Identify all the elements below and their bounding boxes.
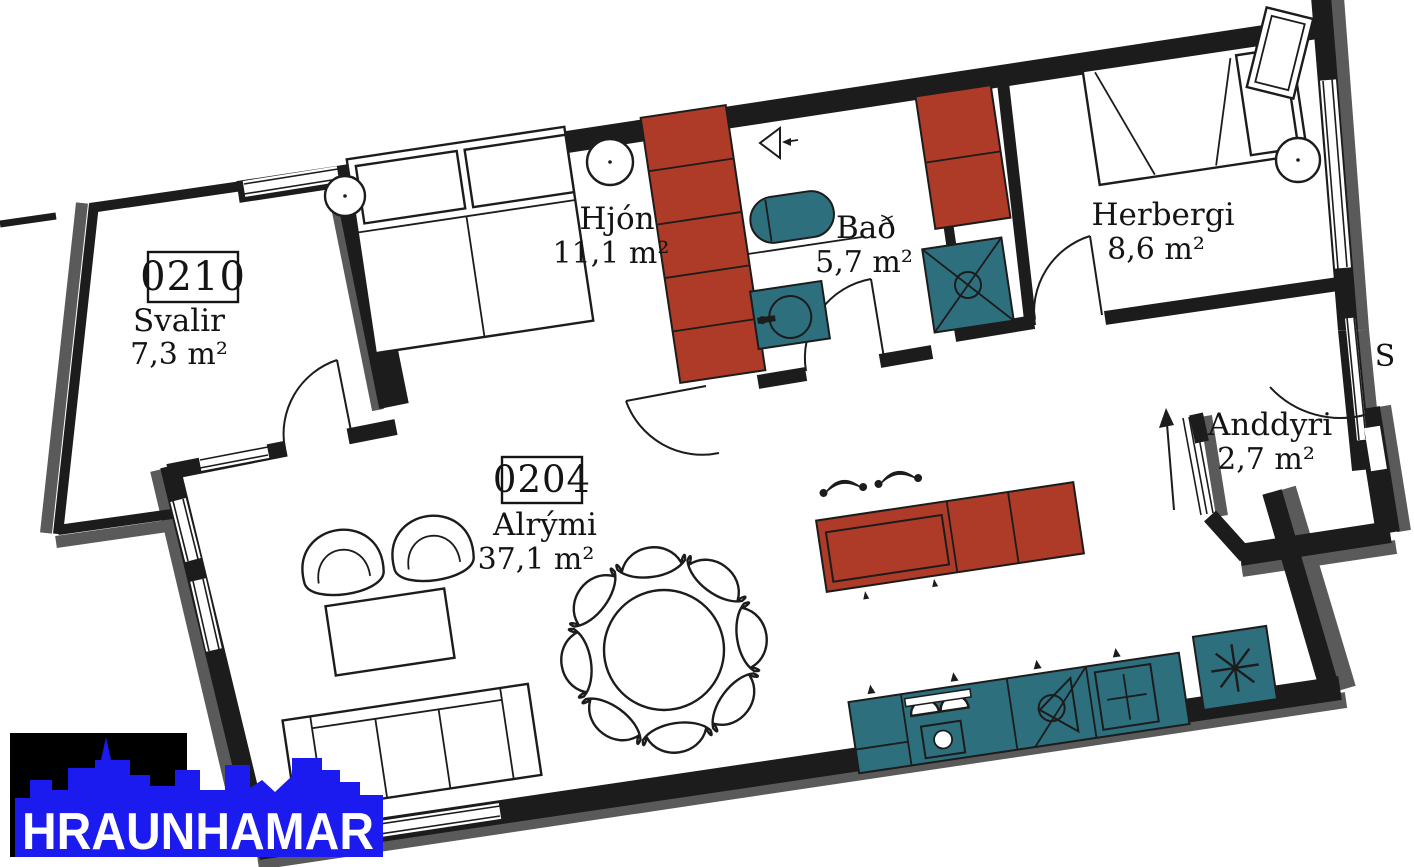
shower-icon	[922, 238, 1014, 333]
coffee-table-icon	[325, 589, 454, 676]
room-area-hjon: 11,1 m²	[553, 236, 670, 271]
entrance-arrow-icon	[1159, 408, 1174, 510]
balcony-unit-number: 0210	[140, 254, 246, 300]
dining-chair-icon	[614, 543, 687, 582]
room-area-herbergi: 8,6 m²	[1107, 232, 1205, 267]
master-bedroom-door	[626, 386, 719, 455]
room-label-bad: Bað	[836, 210, 896, 246]
compass-label: S	[1375, 339, 1396, 374]
bar-stool-icon	[873, 468, 923, 489]
room-label-alrymi: Alrými	[492, 507, 597, 543]
unit-number: 0204	[493, 458, 591, 501]
unit-number-badge: 0204	[493, 457, 591, 503]
unit-number-badge: 0210	[140, 252, 246, 302]
room-label-hjon: Hjón	[579, 201, 654, 237]
room-label-svalir: Svalir	[133, 303, 225, 339]
kitchen-island-icon	[816, 482, 1086, 604]
logo-wordmark: HRAUNHAMAR	[22, 803, 374, 861]
room-area-anddyri: 2,7 m²	[1217, 442, 1315, 477]
floor-plan-page: 0210 Svalir 7,3 m² Hjón 11,1 m² Bað 5,7 …	[0, 0, 1414, 867]
bathroom-cabinet-icon	[916, 85, 1011, 229]
room-label-anddyri: Anddyri	[1207, 407, 1332, 443]
toilet-icon	[747, 188, 837, 246]
washing-machine-icon	[1193, 626, 1277, 710]
floor-plan: 0210 Svalir 7,3 m² Hjón 11,1 m² Bað 5,7 …	[0, 0, 1414, 867]
armchair-icon	[297, 524, 387, 600]
room-area-alrymi: 37,1 m²	[478, 542, 595, 577]
window-panel-icon	[1247, 7, 1313, 98]
bathroom-sink-icon	[750, 281, 830, 349]
fan-icon	[760, 128, 798, 158]
dining-chair-icon	[732, 600, 771, 673]
dining-table-icon	[604, 590, 724, 710]
room-area-bad: 5,7 m²	[815, 245, 913, 280]
dining-chair-icon	[557, 627, 596, 700]
dining-chair-icon	[641, 718, 714, 757]
side-table-icon	[1276, 138, 1320, 182]
room-area-svalir: 7,3 m²	[130, 337, 228, 372]
bedroom-door	[1034, 236, 1102, 325]
balcony-door	[284, 360, 352, 449]
front-door-gap	[1372, 427, 1379, 470]
bar-stool-icon	[818, 477, 868, 498]
room-label-herbergi: Herbergi	[1092, 197, 1235, 233]
armchair-icon	[387, 510, 477, 586]
